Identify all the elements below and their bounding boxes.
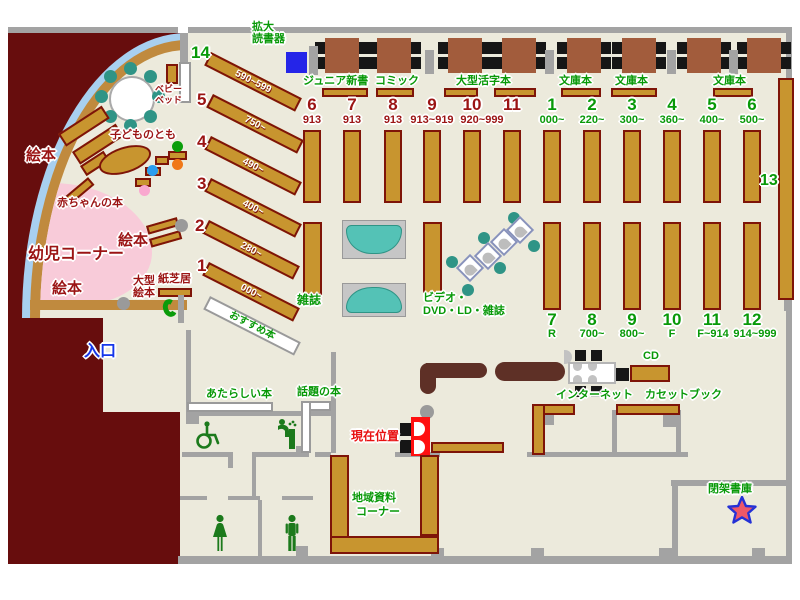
wall-top (8, 27, 792, 33)
pillar (659, 548, 672, 558)
pillar (178, 295, 184, 323)
diagonal-number-5: 5 (197, 91, 206, 110)
stack-number: 8 (373, 96, 413, 115)
stack-number: 1 (532, 96, 572, 115)
stack-shelf (663, 130, 681, 203)
stack-number: 6 (292, 96, 332, 115)
label-internet: インターネット (556, 389, 633, 401)
stack-number: 9 (412, 96, 452, 115)
reading-table (492, 38, 546, 73)
stack-shelf (463, 130, 481, 203)
stack-shelf (543, 130, 561, 203)
stack-shelf (343, 130, 361, 203)
wheelchair-icon (193, 420, 221, 450)
diagonal-number-1: 1 (197, 257, 206, 276)
magnifying-reader (286, 52, 307, 73)
stack-range: 000~ (532, 114, 572, 126)
stack-shelf (623, 130, 641, 203)
label-infant-corner: 幼児コーナー (28, 246, 124, 264)
label-large-picture-books-1: 大型 (133, 275, 155, 287)
reading-table (315, 38, 369, 73)
stack-number: 4 (652, 96, 692, 115)
label-comics: コミック (375, 75, 419, 87)
closed-stacks-star-icon (726, 496, 758, 526)
reading-table (612, 38, 666, 73)
label-kamishibai: 紙芝居 (158, 273, 191, 285)
stack-number: 6 (732, 96, 772, 115)
pillar (752, 548, 765, 558)
shelf-horizontal (616, 404, 680, 415)
chair (124, 62, 137, 75)
shelf-video (423, 222, 442, 295)
man-icon (282, 514, 302, 552)
stack-number: 5 (692, 96, 732, 115)
diagonal-number-4: 4 (197, 133, 206, 152)
label-baby-bed-1: ベビー (155, 85, 182, 95)
stack-range: 913 (292, 114, 332, 126)
step-shelf (155, 156, 169, 165)
reading-table (367, 38, 421, 73)
label-large-picture-books-2: 絵本 (133, 287, 155, 299)
pillar-baby-bed (180, 33, 188, 63)
label-magnifying-reader-1: 拡大 (252, 21, 274, 33)
library-floor-map: 590~599 750~ 490~ 400~ 280~ 000~ おすすめ本 (0, 0, 800, 600)
label-baby-books: 赤ちゃんの本 (57, 197, 123, 209)
local-materials-shelf (330, 536, 439, 554)
stack-number: 8 (572, 311, 612, 330)
stack-shelf (583, 130, 601, 203)
shelf-kamishibai (158, 288, 192, 297)
stack-number: 10 (652, 311, 692, 330)
blue-stool (147, 165, 158, 176)
stack-number: 7 (532, 311, 572, 330)
stack-range: 360~ (652, 114, 692, 126)
reading-table (737, 38, 791, 73)
wall-toilet (180, 496, 207, 500)
label-baby-bed-2: ベッド (155, 96, 182, 106)
label-picture-books: 絵本 (52, 281, 82, 298)
stack-range: F (652, 328, 692, 340)
shelf-cd (630, 365, 670, 382)
label-kodomonotomo: 子どものとも (110, 129, 176, 141)
stack-shelf (743, 222, 761, 310)
curved-sofa (342, 283, 406, 317)
marker-seat (400, 423, 411, 436)
stack-range: 913 (332, 114, 372, 126)
wall-corridor (186, 330, 191, 413)
stack-range: 800~ (612, 328, 652, 340)
table-divider (545, 50, 554, 74)
shelf-new-books (187, 402, 273, 412)
shelf-13 (778, 78, 794, 300)
shelf-topic-books (301, 401, 311, 453)
label-local-materials-2: コーナー (356, 506, 400, 518)
label-closed-stacks: 閉架書庫 (708, 483, 752, 495)
pillar-round (117, 297, 130, 310)
label-bunko: 文庫本 (615, 75, 648, 87)
wall-toilet (182, 452, 233, 457)
label-video-1: ビデオ・ (423, 292, 467, 304)
stack-range: 920~999 (447, 114, 517, 126)
stack-range: 400~ (692, 114, 732, 126)
pillar-round (175, 219, 188, 232)
stack-number: 7 (332, 96, 372, 115)
label-cd: CD (643, 350, 659, 362)
stack-number: 11 (492, 96, 532, 115)
chair (104, 70, 117, 83)
pillar (531, 548, 544, 558)
stack-number: 3 (612, 96, 652, 115)
label-entrance: 入口 (84, 343, 116, 361)
marker-seat (400, 440, 411, 453)
label-local-materials-1: 地域資料 (352, 492, 396, 504)
wall-toilet (258, 500, 262, 556)
pink-stool (139, 185, 150, 196)
stack-shelf (503, 130, 521, 203)
shelf-small (166, 64, 178, 84)
stack-range: 300~ (612, 114, 652, 126)
label-topic-books: 話題の本 (297, 386, 341, 398)
wall-segment (315, 452, 331, 457)
label-magazines: 雑誌 (297, 294, 321, 307)
curved-sofa (342, 220, 406, 259)
stack-shelf (743, 130, 761, 203)
chair (616, 368, 629, 381)
woman-icon (210, 514, 230, 552)
diagonal-number-2: 2 (195, 217, 204, 236)
carpet-bottomleft (8, 412, 180, 564)
table-divider (729, 50, 738, 74)
stack-number: 10 (452, 96, 492, 115)
stack-range: 220~ (572, 114, 612, 126)
stack-shelf (303, 130, 321, 203)
stack-range: 914~999 (725, 328, 785, 340)
diagonal-number-3: 3 (197, 175, 206, 194)
stack-shelf (384, 130, 402, 203)
label-magnifying-reader-2: 読書器 (252, 33, 285, 45)
reading-table (557, 38, 611, 73)
reading-table (677, 38, 731, 73)
label-picture-books: 絵本 (118, 233, 148, 250)
label-new-books: あたらしい本 (206, 388, 272, 400)
wall-segment (612, 410, 617, 457)
table-divider (667, 50, 676, 74)
table-divider (425, 50, 434, 74)
wall-toilet (228, 452, 233, 468)
stack-number: 11 (692, 311, 732, 330)
stack-range: 500~ (732, 114, 772, 126)
counter (495, 362, 565, 381)
wall-toilet (228, 496, 260, 500)
label-bunko: 文庫本 (559, 75, 592, 87)
chair (144, 70, 157, 83)
wall-toilet (282, 496, 313, 500)
shelf-magazines (303, 222, 322, 295)
chair (144, 110, 157, 123)
stack-shelf (663, 222, 681, 310)
stack-shelf (703, 130, 721, 203)
label-bunko: 文庫本 (713, 75, 746, 87)
label-shelf-13: 13 (760, 172, 778, 190)
counter (426, 363, 487, 378)
stack-number: 12 (732, 311, 772, 330)
pillar (309, 46, 318, 75)
stack-shelf (423, 130, 441, 203)
label-large-print: 大型活字本 (456, 75, 511, 87)
wall-vertical (331, 352, 336, 453)
diagonal-number-14: 14 (191, 44, 210, 63)
label-picture-books: 絵本 (26, 148, 56, 165)
stack-shelf (623, 222, 641, 310)
shelf-cassette (532, 404, 545, 455)
orange-stool (172, 159, 183, 170)
green-stool (172, 141, 183, 152)
wall-bottom (178, 556, 792, 564)
reading-table (438, 38, 492, 73)
stack-shelf (703, 222, 721, 310)
shelf-horizontal (431, 442, 504, 453)
label-video-2: DVD・LD・雑誌 (423, 305, 505, 317)
drinking-fountain-icon (274, 417, 300, 451)
stack-range: R (532, 328, 572, 340)
wall-toilet (252, 452, 256, 498)
chair (95, 90, 108, 103)
stack-number: 9 (612, 311, 652, 330)
label-junior-books: ジュニア新書 (303, 75, 368, 87)
label-current-location: 現在位置 (351, 430, 399, 443)
wall-stacks-room-left (672, 486, 678, 556)
stack-shelf (583, 222, 601, 310)
local-materials-shelf (420, 455, 439, 536)
stack-number: 2 (572, 96, 612, 115)
label-cassette-books: カセットブック (645, 389, 722, 401)
stack-range: 700~ (572, 328, 612, 340)
